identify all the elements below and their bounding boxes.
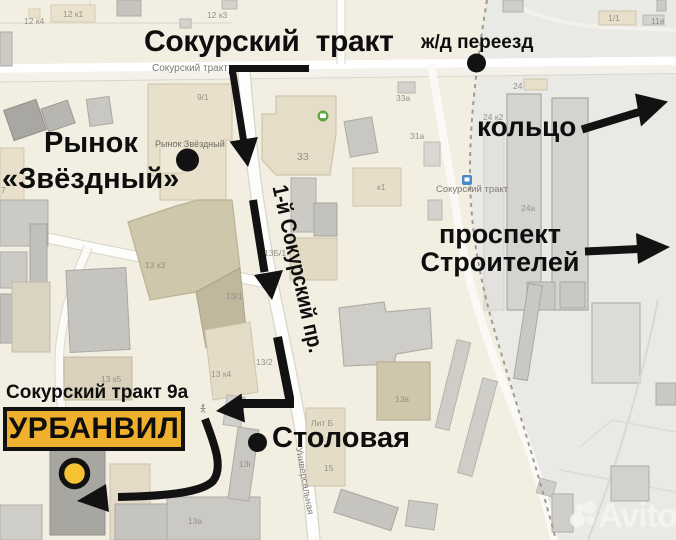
svg-text:24а: 24а: [521, 203, 535, 213]
svg-text:13/2: 13/2: [256, 357, 273, 367]
svg-text:9/1: 9/1: [197, 92, 209, 102]
svg-text:13 к3: 13 к3: [145, 260, 166, 270]
svg-text:Сокурский тракт: Сокурский тракт: [436, 184, 509, 195]
svg-text:Сокурский тракт: Сокурский тракт: [152, 63, 228, 74]
svg-text:13/1: 13/1: [226, 291, 243, 301]
svg-text:33: 33: [297, 151, 309, 163]
svg-text:13г: 13г: [239, 459, 252, 469]
svg-text:12 к1: 12 к1: [63, 9, 84, 19]
svg-text:31а: 31а: [410, 131, 424, 141]
svg-text:1/1: 1/1: [608, 13, 620, 23]
svg-text:к1: к1: [377, 182, 386, 192]
svg-text:Avito: Avito: [598, 497, 676, 535]
svg-text:24: 24: [513, 81, 523, 91]
svg-text:11е: 11е: [651, 16, 665, 26]
svg-text:Рынок Звёздный: Рынок Звёздный: [155, 139, 225, 149]
svg-text:12 к3: 12 к3: [207, 10, 228, 20]
svg-text:12 к4: 12 к4: [24, 16, 45, 26]
svg-text:33а: 33а: [396, 93, 410, 103]
svg-text:15: 15: [324, 463, 334, 473]
svg-text:13а: 13а: [188, 516, 202, 526]
svg-text:13в: 13в: [395, 394, 409, 404]
svg-text:13 к4: 13 к4: [211, 369, 232, 379]
